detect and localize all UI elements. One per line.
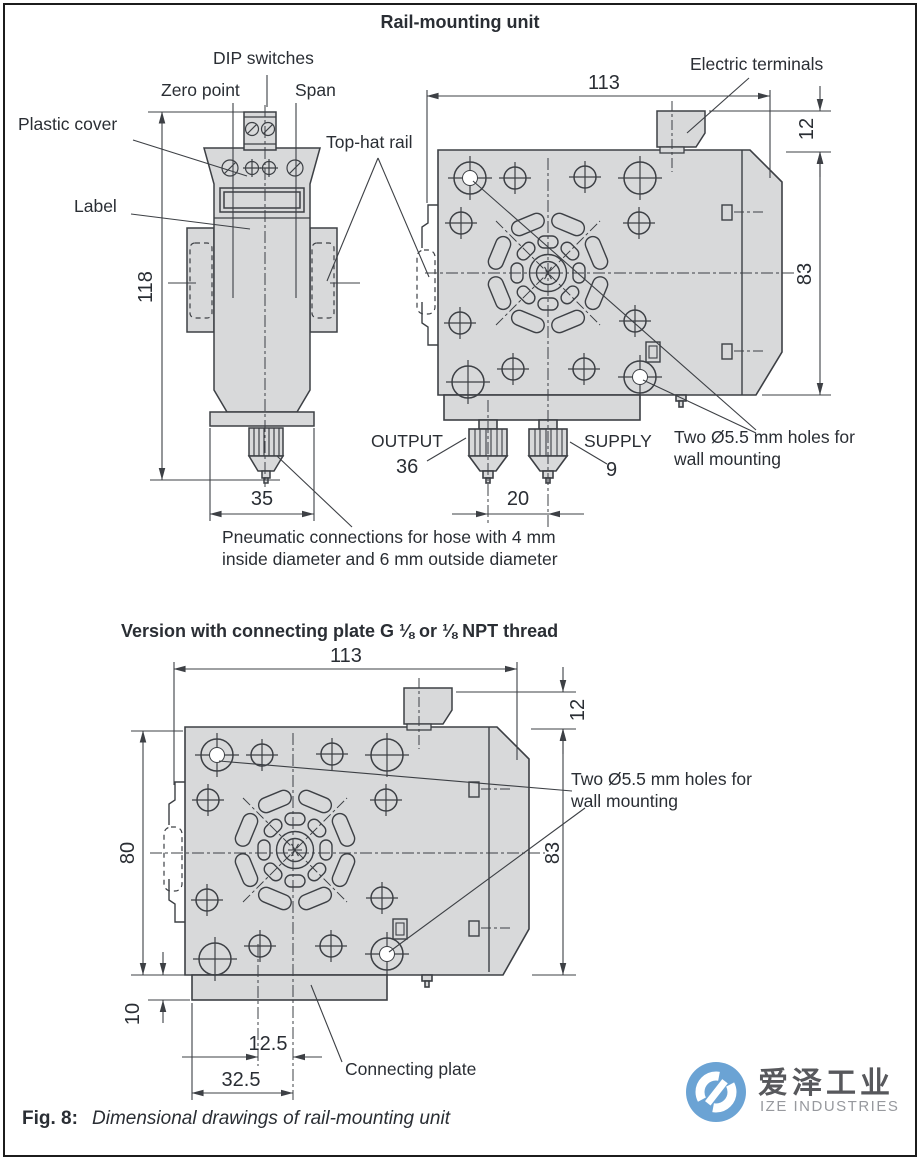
figure-page: Rail-mounting unit DIP switches Zero poi… [0,0,920,1165]
label-top-hat-rail: Top-hat rail [326,132,413,154]
label-pneumatic-note: Pneumatic connections for hose with 4 mm… [222,527,558,571]
dim-terminal-height-s2: 12 [567,688,589,732]
label-dip-switches: DIP switches [213,48,314,70]
label-wall-holes-s2: Two Ø5.5 mm holes for wall mounting [571,769,752,813]
dim-body-height-s1: 83 [794,252,816,296]
label-span: Span [295,80,336,102]
dim-port-spacing: 20 [488,488,548,511]
label-supply-port: 9 [606,459,617,482]
dim-unit-height: 118 [135,265,157,309]
dim-plate-port-width: 32.5 [211,1069,271,1092]
label-plastic-cover: Plastic cover [18,114,117,136]
label-zero-point: Zero point [161,80,240,102]
label-supply: SUPPLY [584,431,652,453]
label-connecting-plate: Connecting plate [345,1059,476,1081]
dim-width-s1: 113 [574,72,634,95]
label-label: Label [74,196,117,218]
section2-title: Version with connecting plate G ⅛ or ⅛ N… [121,621,558,642]
dim-body-height-right-s2: 83 [542,831,564,875]
logo-en-text: IZE INDUSTRIES [760,1098,899,1115]
dim-terminal-height-s1: 12 [796,107,818,151]
dim-width-s2: 113 [316,645,376,668]
dim-body-height-left-s2: 80 [117,831,139,875]
dim-port-offset: 12.5 [238,1033,298,1056]
logo-cn-text: 爱泽工业 [758,1058,894,1102]
figure-title: Rail-mounting unit [0,12,920,33]
label-output: OUTPUT [371,431,443,453]
label-wall-holes-s1: Two Ø5.5 mm holes for wall mounting [674,427,855,471]
dim-unit-width: 35 [232,488,292,511]
dim-plate-height: 10 [122,992,144,1036]
label-output-port: 36 [396,456,418,479]
figure-border [3,3,917,1157]
caption-fig-label: Fig. 8: [22,1108,78,1130]
label-electric-terminals: Electric terminals [690,54,823,76]
caption-text: Dimensional drawings of rail-mounting un… [92,1108,450,1130]
